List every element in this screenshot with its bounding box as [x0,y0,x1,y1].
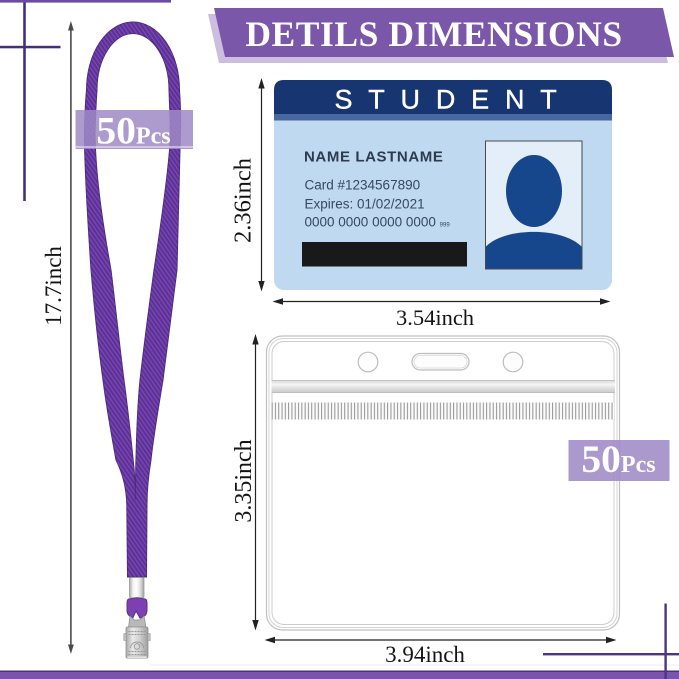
svg-text:3.94inch: 3.94inch [385,642,465,667]
svg-text:3.35inch: 3.35inch [231,439,257,522]
svg-text:17.7inch: 17.7inch [41,246,66,326]
svg-text:NAME LASTNAME: NAME LASTNAME [304,149,443,166]
svg-text:0000 0000 0000 0000 999: 0000 0000 0000 0000 999 [305,215,451,230]
svg-text:STUDENT: STUDENT [334,85,572,115]
svg-text:Expires: 01/02/2021: Expires: 01/02/2021 [305,197,425,212]
svg-text:3.54inch: 3.54inch [396,305,474,330]
svg-text:DETILS DIMENSIONS: DETILS DIMENSIONS [245,14,622,54]
svg-text:Card #1234567890: Card #1234567890 [305,178,421,193]
svg-text:2.36inch: 2.36inch [230,158,257,243]
